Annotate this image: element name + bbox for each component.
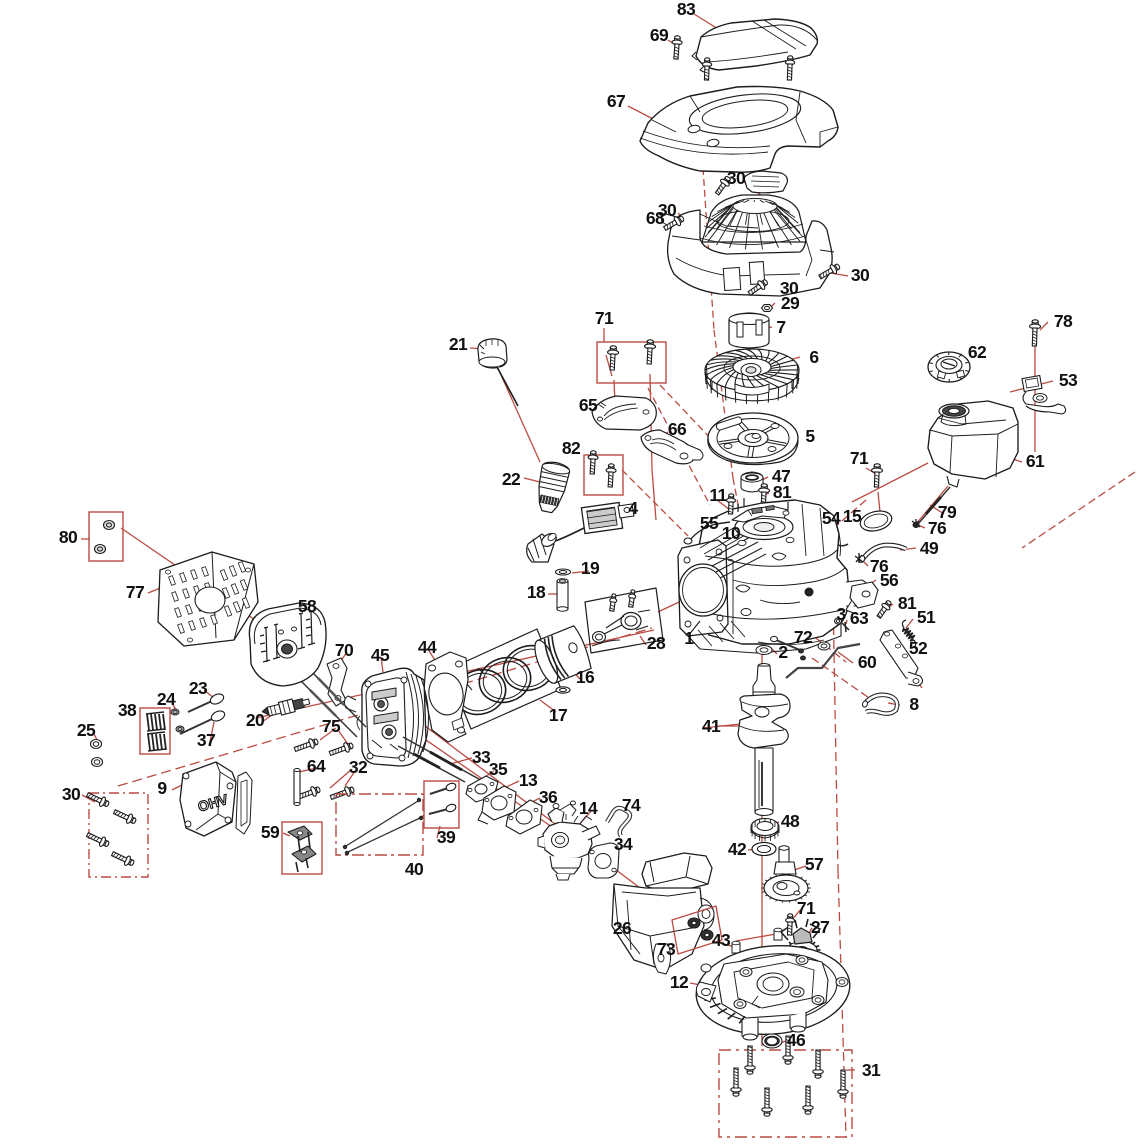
svg-text:32: 32 [349, 757, 368, 777]
svg-text:66: 66 [668, 419, 687, 439]
svg-text:71: 71 [850, 448, 869, 468]
svg-text:24: 24 [157, 689, 176, 709]
svg-text:25: 25 [77, 720, 96, 740]
svg-text:78: 78 [1054, 311, 1073, 331]
svg-text:70: 70 [335, 640, 354, 660]
svg-text:54: 54 [822, 508, 841, 528]
svg-text:9: 9 [157, 778, 167, 798]
svg-text:55: 55 [700, 513, 719, 533]
svg-text:6: 6 [809, 347, 819, 367]
svg-text:65: 65 [579, 395, 598, 415]
svg-text:29: 29 [781, 293, 800, 313]
svg-text:30: 30 [851, 265, 870, 285]
svg-text:27: 27 [811, 917, 829, 937]
svg-text:82: 82 [562, 438, 581, 458]
svg-text:31: 31 [862, 1060, 881, 1080]
svg-text:37: 37 [197, 730, 215, 750]
svg-text:30: 30 [727, 168, 746, 188]
svg-text:59: 59 [261, 822, 280, 842]
svg-text:61: 61 [1026, 451, 1045, 471]
svg-text:12: 12 [670, 972, 689, 992]
svg-text:36: 36 [539, 787, 558, 807]
svg-text:13: 13 [519, 770, 538, 790]
svg-text:76: 76 [928, 518, 947, 538]
svg-text:45: 45 [371, 645, 390, 665]
svg-text:49: 49 [920, 538, 939, 558]
svg-text:4: 4 [628, 498, 638, 518]
svg-text:63: 63 [850, 608, 869, 628]
svg-text:43: 43 [712, 930, 731, 950]
svg-text:40: 40 [405, 859, 424, 879]
svg-text:81: 81 [898, 593, 917, 613]
svg-text:51: 51 [917, 607, 936, 627]
svg-text:15: 15 [843, 506, 862, 526]
svg-text:81: 81 [773, 482, 792, 502]
svg-text:67: 67 [607, 91, 625, 111]
svg-text:44: 44 [418, 637, 437, 657]
svg-text:69: 69 [650, 25, 669, 45]
svg-text:73: 73 [657, 939, 676, 959]
svg-text:53: 53 [1059, 370, 1078, 390]
svg-text:62: 62 [968, 342, 987, 362]
svg-text:71: 71 [797, 898, 816, 918]
svg-text:23: 23 [189, 678, 208, 698]
svg-text:16: 16 [576, 667, 595, 687]
svg-text:10: 10 [722, 523, 741, 543]
svg-text:48: 48 [781, 811, 800, 831]
svg-text:18: 18 [527, 582, 546, 602]
svg-text:42: 42 [728, 839, 747, 859]
svg-text:21: 21 [449, 334, 468, 354]
svg-text:77: 77 [126, 582, 144, 602]
svg-text:22: 22 [502, 469, 521, 489]
svg-text:14: 14 [579, 798, 598, 818]
svg-text:17: 17 [549, 705, 567, 725]
svg-text:35: 35 [489, 759, 508, 779]
svg-text:7: 7 [776, 317, 785, 337]
svg-text:60: 60 [858, 652, 877, 672]
svg-text:41: 41 [702, 716, 721, 736]
svg-text:30: 30 [62, 784, 81, 804]
svg-text:57: 57 [805, 854, 823, 874]
svg-text:83: 83 [677, 0, 696, 19]
svg-text:39: 39 [437, 827, 456, 847]
svg-text:34: 34 [614, 834, 633, 854]
svg-text:3: 3 [836, 604, 846, 624]
svg-text:74: 74 [622, 795, 641, 815]
svg-text:80: 80 [59, 527, 78, 547]
svg-text:46: 46 [787, 1030, 806, 1050]
svg-text:56: 56 [880, 570, 899, 590]
svg-text:38: 38 [118, 700, 137, 720]
svg-text:28: 28 [647, 633, 666, 653]
svg-text:2: 2 [778, 642, 788, 662]
svg-text:11: 11 [709, 485, 727, 505]
svg-text:19: 19 [581, 558, 600, 578]
svg-text:52: 52 [909, 638, 928, 658]
svg-text:58: 58 [298, 596, 317, 616]
svg-text:72: 72 [794, 627, 813, 647]
svg-text:26: 26 [613, 918, 632, 938]
svg-text:5: 5 [805, 426, 815, 446]
svg-text:75: 75 [322, 716, 341, 736]
svg-text:20: 20 [246, 710, 265, 730]
svg-text:71: 71 [595, 308, 614, 328]
svg-text:64: 64 [307, 756, 326, 776]
svg-text:8: 8 [909, 694, 919, 714]
svg-text:68: 68 [646, 208, 665, 228]
svg-text:1: 1 [684, 628, 694, 648]
